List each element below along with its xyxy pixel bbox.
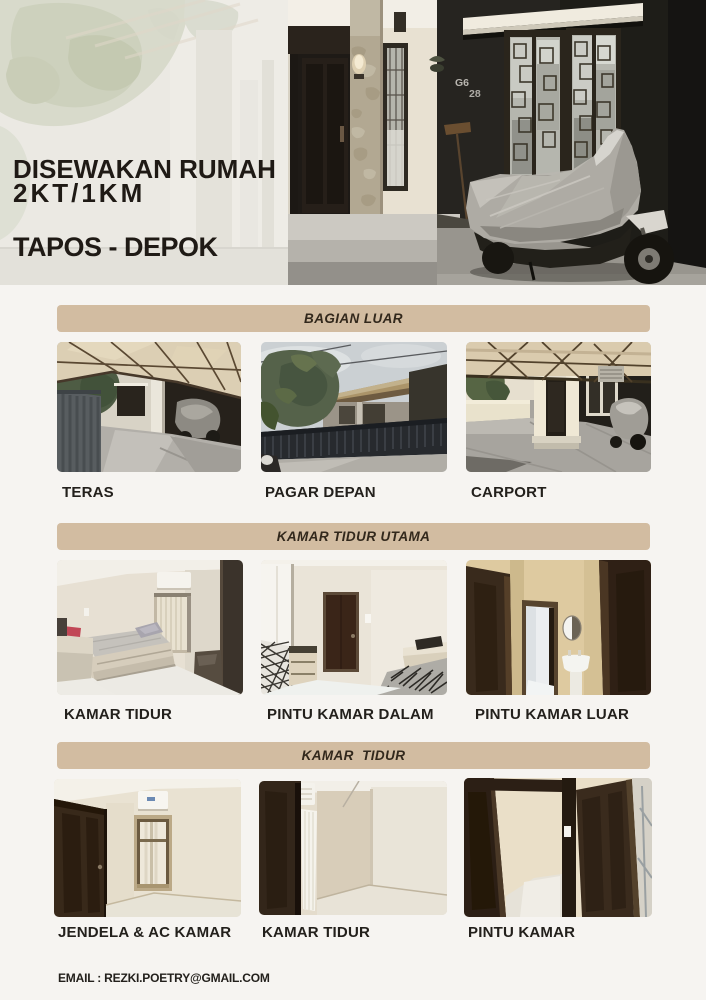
svg-text:G6: G6 [455,77,469,89]
svg-text:28: 28 [469,88,481,100]
